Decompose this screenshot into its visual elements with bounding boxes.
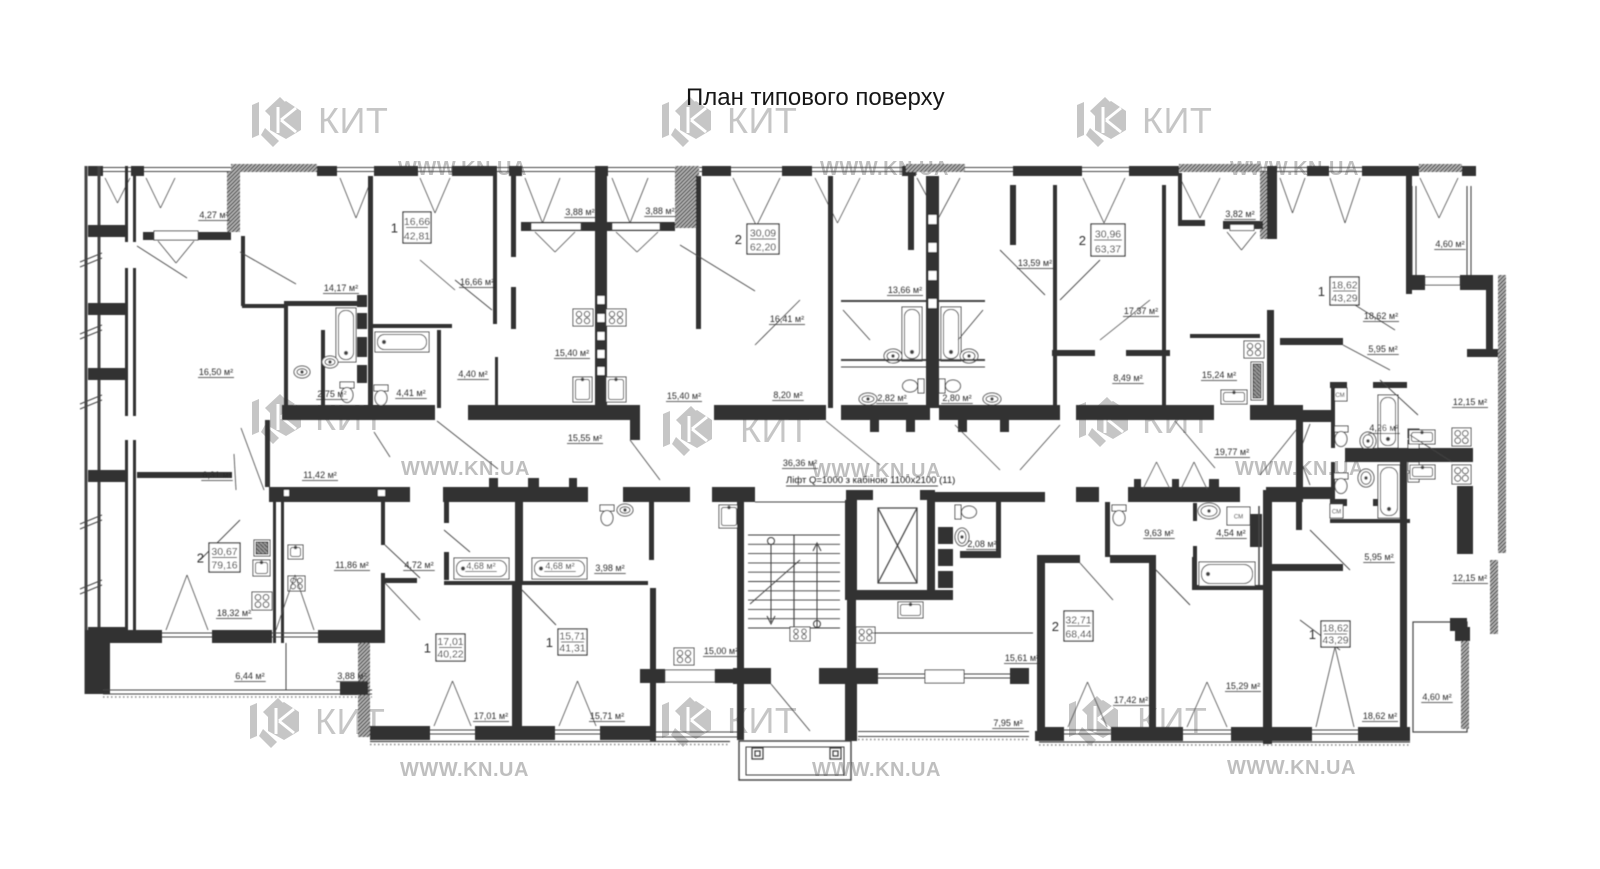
svg-text:13,66 м²: 13,66 м² <box>888 285 922 295</box>
svg-text:18,62: 18,62 <box>1331 280 1357 292</box>
svg-text:30,09: 30,09 <box>750 228 776 240</box>
svg-text:4,60 м²: 4,60 м² <box>1435 239 1464 249</box>
svg-text:СМ: СМ <box>1332 510 1341 516</box>
svg-text:18,62 м²: 18,62 м² <box>1363 711 1397 721</box>
svg-text:62,20: 62,20 <box>750 242 776 254</box>
svg-text:6,44 м²: 6,44 м² <box>235 671 264 681</box>
svg-text:WWW.KN.UA: WWW.KN.UA <box>400 759 529 781</box>
svg-text:14,17 м²: 14,17 м² <box>324 283 358 293</box>
svg-text:1: 1 <box>391 221 398 236</box>
svg-text:3,88 м²: 3,88 м² <box>565 207 594 217</box>
svg-text:15,40 м²: 15,40 м² <box>667 391 701 401</box>
svg-text:11,42 м²: 11,42 м² <box>303 470 337 480</box>
svg-text:8,49 м²: 8,49 м² <box>1113 373 1142 383</box>
svg-text:4,60 м²: 4,60 м² <box>1422 692 1451 702</box>
svg-text:3,88 м²: 3,88 м² <box>337 671 366 681</box>
svg-text:41,31: 41,31 <box>559 643 585 655</box>
svg-text:4,72 м²: 4,72 м² <box>404 560 433 570</box>
svg-text:18,32 м²: 18,32 м² <box>217 608 251 618</box>
svg-text:4,54 м²: 4,54 м² <box>1216 528 1245 538</box>
svg-text:План типового поверху: План типового поверху <box>686 84 945 111</box>
svg-text:17,01: 17,01 <box>437 636 463 648</box>
svg-text:15,71: 15,71 <box>559 631 585 643</box>
svg-text:7,95 м²: 7,95 м² <box>993 718 1022 728</box>
svg-text:4,68 м²: 4,68 м² <box>545 561 574 571</box>
svg-text:3,98 м²: 3,98 м² <box>595 563 624 573</box>
svg-text:1: 1 <box>1309 627 1316 642</box>
svg-text:32,71: 32,71 <box>1065 615 1091 627</box>
svg-text:2: 2 <box>735 232 742 247</box>
svg-text:15,24 м²: 15,24 м² <box>1202 370 1236 380</box>
svg-text:СМ: СМ <box>1335 393 1344 399</box>
svg-text:15,61 м²: 15,61 м² <box>1005 653 1039 663</box>
svg-text:4,68 м²: 4,68 м² <box>466 561 495 571</box>
svg-text:15,71 м²: 15,71 м² <box>590 711 624 721</box>
svg-text:9,63 м²: 9,63 м² <box>1144 528 1173 538</box>
svg-text:16,50 м²: 16,50 м² <box>199 367 233 377</box>
svg-text:3,82 м²: 3,82 м² <box>1225 209 1254 219</box>
svg-text:15,00 м²: 15,00 м² <box>704 646 738 656</box>
svg-text:2,08 м²: 2,08 м² <box>967 539 996 549</box>
svg-text:19,77 м²: 19,77 м² <box>1215 447 1249 457</box>
svg-text:WWW.KN.UA: WWW.KN.UA <box>1227 757 1356 779</box>
svg-text:5,95 м²: 5,95 м² <box>1368 344 1397 354</box>
svg-text:2,75 м²: 2,75 м² <box>317 389 346 399</box>
svg-text:2,80 м²: 2,80 м² <box>942 393 971 403</box>
svg-text:1: 1 <box>424 641 431 656</box>
svg-text:16,66: 16,66 <box>404 216 430 228</box>
svg-text:6,31 м²: 6,31 м² <box>202 470 231 480</box>
svg-text:63,37: 63,37 <box>1095 244 1121 256</box>
svg-text:Ліфт Q=1000 з кабіною 1100х210: Ліфт Q=1000 з кабіною 1100х2100 (11) <box>786 475 955 486</box>
svg-text:3,88 м²: 3,88 м² <box>645 206 674 216</box>
svg-text:СМ: СМ <box>1234 515 1243 521</box>
svg-text:42,81: 42,81 <box>404 231 430 243</box>
svg-text:4,41 м²: 4,41 м² <box>396 388 425 398</box>
svg-text:18,62 м²: 18,62 м² <box>1364 311 1398 321</box>
svg-text:1: 1 <box>1318 284 1325 299</box>
svg-text:17,37 м²: 17,37 м² <box>1124 306 1158 316</box>
svg-text:WWW.KN.UA: WWW.KN.UA <box>812 759 941 781</box>
svg-text:16,66 м²: 16,66 м² <box>460 277 494 287</box>
svg-text:8,20 м²: 8,20 м² <box>773 390 802 400</box>
svg-text:КИТ: КИТ <box>318 100 388 141</box>
svg-text:2: 2 <box>197 551 204 566</box>
svg-text:68,44: 68,44 <box>1065 629 1091 641</box>
svg-text:15,55 м²: 15,55 м² <box>568 433 602 443</box>
svg-text:36,36 м²: 36,36 м² <box>783 458 817 468</box>
svg-text:18,62: 18,62 <box>1322 623 1348 635</box>
svg-text:5,95 м²: 5,95 м² <box>1364 552 1393 562</box>
svg-text:79,16: 79,16 <box>211 560 237 572</box>
svg-text:15,29 м²: 15,29 м² <box>1226 681 1260 691</box>
svg-text:11,86 м²: 11,86 м² <box>335 560 369 570</box>
svg-text:17,01 м²: 17,01 м² <box>474 711 508 721</box>
svg-text:43,29: 43,29 <box>1331 293 1357 305</box>
svg-text:43,29: 43,29 <box>1322 635 1348 647</box>
svg-text:2,82 м²: 2,82 м² <box>877 393 906 403</box>
svg-text:4,26 м²: 4,26 м² <box>1369 423 1398 433</box>
svg-text:30,67: 30,67 <box>211 546 237 558</box>
svg-text:2: 2 <box>1079 233 1086 248</box>
svg-text:2: 2 <box>1052 619 1059 634</box>
svg-text:15,40 м²: 15,40 м² <box>555 348 589 358</box>
svg-text:4,27 м²: 4,27 м² <box>199 210 228 220</box>
svg-text:КИТ: КИТ <box>1142 100 1212 141</box>
svg-text:4,40 м²: 4,40 м² <box>458 369 487 379</box>
svg-text:40,22: 40,22 <box>437 649 463 661</box>
svg-text:12,15 м²: 12,15 м² <box>1453 397 1487 407</box>
svg-text:16,41 м²: 16,41 м² <box>770 314 804 324</box>
svg-text:WWW.KN.UA: WWW.KN.UA <box>401 458 530 480</box>
svg-text:13,59 м²: 13,59 м² <box>1018 258 1052 268</box>
svg-text:17,42 м²: 17,42 м² <box>1114 695 1148 705</box>
svg-text:30,96: 30,96 <box>1095 229 1121 241</box>
svg-text:1: 1 <box>546 635 553 650</box>
svg-text:12,15 м²: 12,15 м² <box>1453 573 1487 583</box>
